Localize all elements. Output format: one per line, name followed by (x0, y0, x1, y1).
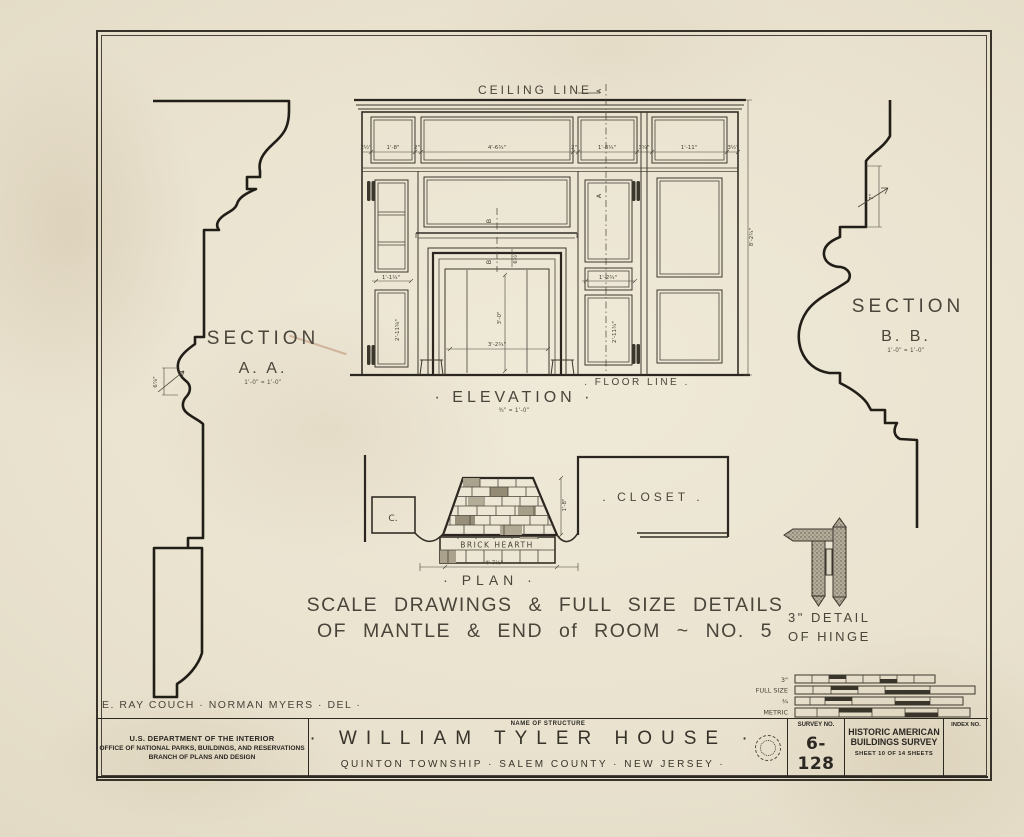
name-of-structure-label: NAME OF STRUCTURE (309, 721, 787, 727)
dim-label: 1'-11" (681, 145, 698, 151)
title-block: U.S. DEPARTMENT OF THE INTERIOR OFFICE O… (96, 718, 988, 778)
dim-label: 3'-0" (497, 311, 503, 324)
dim-label: 2½" (360, 144, 371, 151)
scalebar-label: FULL SIZE (756, 687, 788, 695)
dim-label: 1'-8" (562, 498, 568, 511)
elevation-scale: ¾" = 1'-0" (499, 408, 530, 414)
drawing-linework: 6⅞" 7" 2½ (0, 0, 1024, 837)
section-marker-a: A (595, 88, 603, 93)
floor-line-label: . FLOOR LINE . (584, 377, 690, 388)
sheet-caption: SCALE DRAWINGS & FULL SIZE DETAILS OF MA… (307, 592, 784, 644)
dim-label: 1'-2¾" (599, 275, 617, 281)
section-bb-dim: 7" (869, 194, 875, 200)
section-bb-scale: 1'-0" = 1'-0" (887, 348, 924, 354)
title-block-agency: U.S. DEPARTMENT OF THE INTERIOR OFFICE O… (96, 719, 309, 776)
dim-label: 8'-2¾" (749, 228, 755, 246)
habs-line2: BUILDINGS SURVEY (845, 737, 943, 747)
dim-label: 1'-8¾" (598, 145, 616, 151)
survey-seal-icon (755, 735, 781, 761)
scale-bars: 3" FULL SIZE ¾ METRIC (756, 675, 975, 717)
title-block-habs: HISTORIC AMERICAN BUILDINGS SURVEY SHEET… (845, 719, 944, 776)
section-marker-b: B (485, 219, 493, 223)
scalebar-label: ¾ (782, 698, 789, 706)
agency-line3: BRANCH OF PLANS AND DESIGN (96, 754, 308, 761)
title-block-survey: SURVEY NO. 6-128 (788, 719, 845, 776)
survey-no-label: SURVEY NO. (788, 722, 844, 728)
habs-line1: HISTORIC AMERICAN (845, 727, 943, 737)
hinge-detail-drawing (784, 518, 846, 606)
dim-label: 3¾" (638, 145, 649, 151)
delineator-credits: E. RAY COUCH · NORMAN MYERS · DEL · (102, 699, 361, 711)
dim-label: 4'-6¾" (488, 145, 506, 151)
dim-label: 2" (414, 145, 420, 151)
dim-label: 2" (571, 145, 577, 151)
brick-hearth-label: BRICK HEARTH (460, 541, 534, 550)
agency-line2: OFFICE OF NATIONAL PARKS, BUILDINGS, AND… (96, 745, 308, 752)
section-aa-letters: A. A. (239, 360, 288, 378)
ceiling-line-label: CEILING LINE (478, 83, 592, 97)
structure-location: QUINTON TOWNSHIP · SALEM COUNTY · NEW JE… (309, 759, 757, 770)
plan-drawing: C. BRICK HEARTH (365, 455, 728, 571)
section-aa-scale: 1'-0" = 1'-0" (244, 380, 281, 386)
hinge-label-line2: OF HINGE (788, 627, 871, 646)
caption-line1: SCALE DRAWINGS & FULL SIZE DETAILS (307, 592, 784, 618)
structure-name: · WILLIAM TYLER HOUSE · (309, 728, 757, 750)
agency-line1: U.S. DEPARTMENT OF THE INTERIOR (96, 734, 308, 743)
dim-label: 3½" (727, 144, 738, 151)
hinge-label-line1: 3" DETAIL (788, 608, 871, 627)
section-aa-dim: 6⅞" (153, 376, 159, 387)
closet-label: . CLOSET . (602, 490, 703, 504)
plan-c-label: C. (388, 514, 397, 524)
title-block-index: INDEX NO. (944, 719, 988, 776)
dim-label: 1'-8" (386, 145, 399, 151)
elevation-drawing: 2½" 1'-8" 2" 4'-6¾" 2" 1'-8¾" 3¾" 1'-11"… (350, 84, 755, 375)
dim-label: 4'-7½" (485, 560, 503, 567)
dim-label: 2'-11¾" (612, 321, 618, 343)
dim-label: 3'-2¾" (488, 342, 506, 348)
index-no-label: INDEX NO. (944, 722, 988, 728)
section-bb-letters: B. B. (881, 328, 931, 346)
section-marker-b: B (485, 260, 493, 264)
title-block-structure: NAME OF STRUCTURE · WILLIAM TYLER HOUSE … (309, 719, 788, 776)
sheet-info: SHEET 10 OF 14 SHEETS (845, 751, 943, 757)
section-aa-profile: 6⅞" (153, 101, 289, 697)
dim-label: 1'-1¾" (382, 275, 400, 281)
section-marker-a: A (595, 193, 603, 198)
caption-line2: OF MANTLE & END of ROOM ~ NO. 5 (307, 618, 784, 644)
elevation-title: · ELEVATION · (435, 389, 594, 407)
survey-no-value: 6-128 (788, 734, 844, 774)
drawing-sheet: 6⅞" 7" 2½ (0, 0, 1024, 837)
hinge-detail-label: 3" DETAIL OF HINGE (788, 608, 871, 646)
section-aa-title: SECTION (207, 328, 319, 350)
dim-label: 6½" (512, 252, 519, 263)
scalebar-label: METRIC (763, 709, 788, 717)
section-bb-title: SECTION (852, 296, 964, 318)
scalebar-label: 3" (781, 676, 788, 684)
plan-title: · PLAN · (443, 572, 537, 588)
dim-label: 2'-11⅝" (395, 319, 401, 341)
